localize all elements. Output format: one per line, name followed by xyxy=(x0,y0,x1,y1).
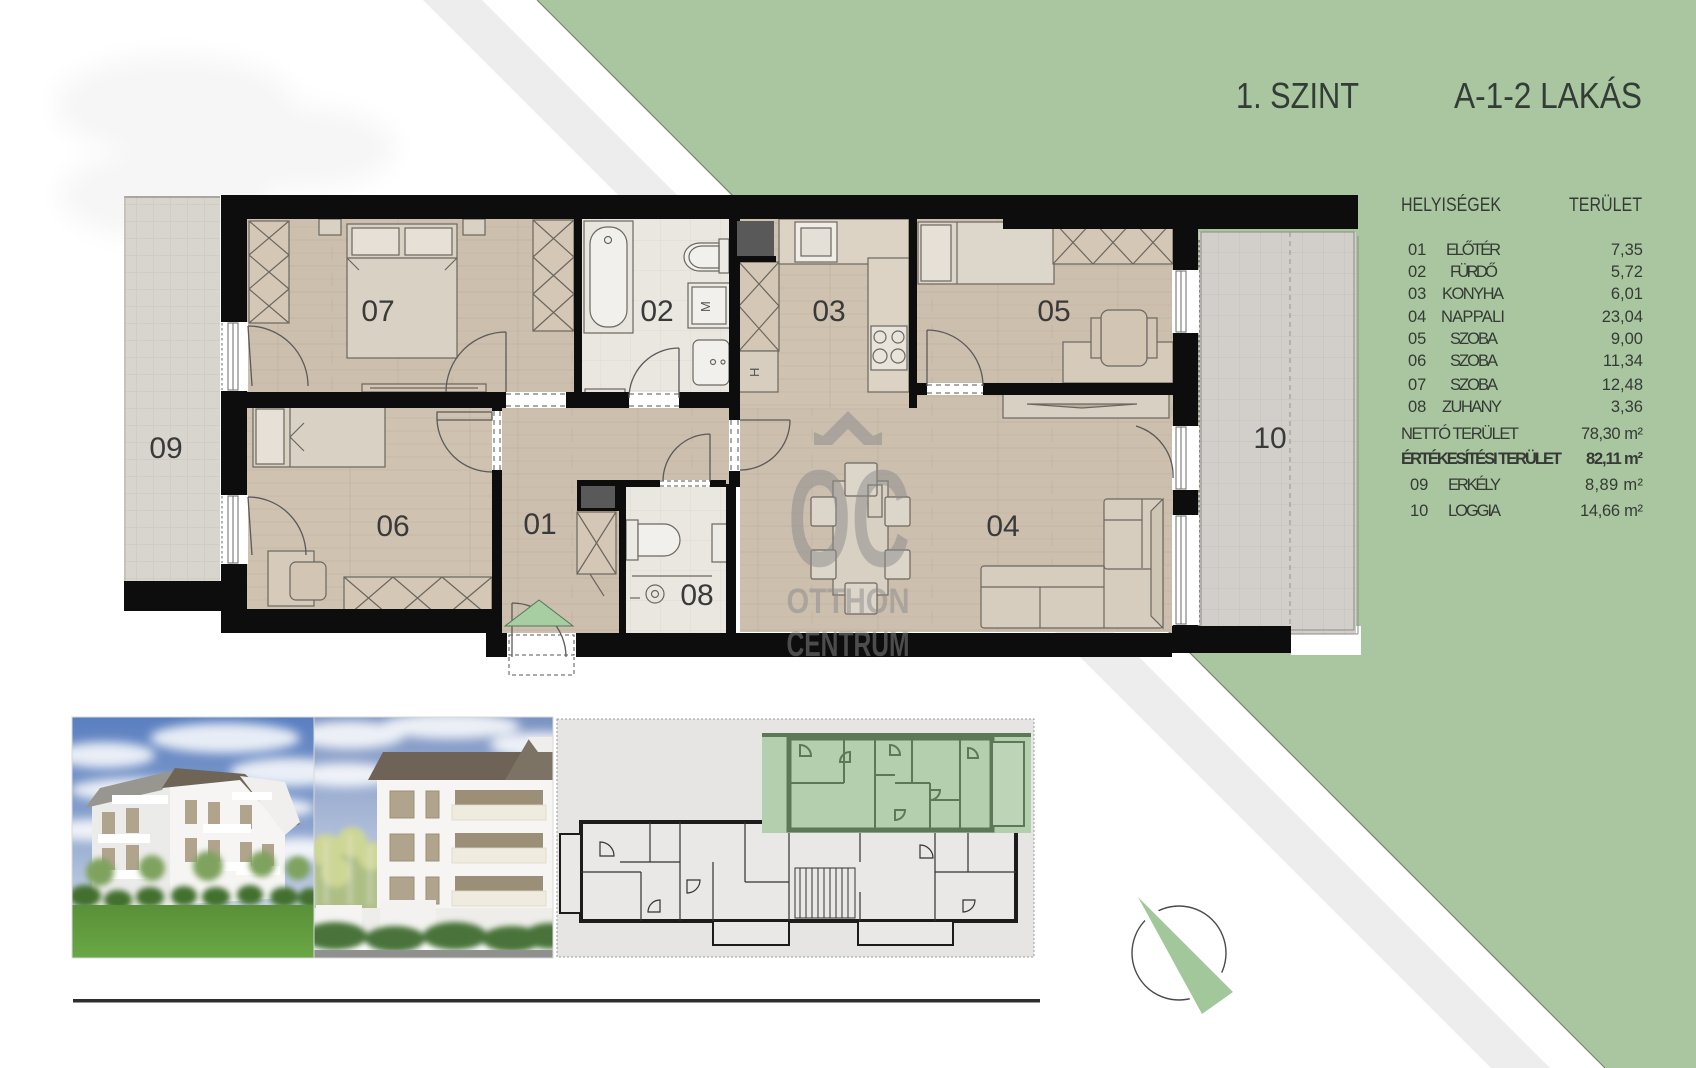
svg-text:07: 07 xyxy=(1408,376,1426,394)
svg-text:CENTRUM: CENTRUM xyxy=(787,625,910,664)
svg-text:03: 03 xyxy=(1408,285,1426,303)
svg-text:23,04: 23,04 xyxy=(1602,308,1643,326)
svg-text:ELŐTÉR: ELŐTÉR xyxy=(1446,240,1501,259)
svg-text:06: 06 xyxy=(1408,352,1426,370)
svg-text:SZOBA: SZOBA xyxy=(1450,376,1498,394)
svg-text:10: 10 xyxy=(1253,422,1286,455)
svg-text:14,66 m²: 14,66 m² xyxy=(1580,502,1644,520)
svg-text:06: 06 xyxy=(376,510,409,543)
svg-text:OTTHON: OTTHON xyxy=(787,582,910,621)
svg-text:ERKÉLY: ERKÉLY xyxy=(1448,475,1501,494)
svg-text:5,72: 5,72 xyxy=(1611,263,1643,281)
svg-text:OC: OC xyxy=(788,442,910,596)
svg-text:12,48: 12,48 xyxy=(1602,376,1643,394)
svg-text:04: 04 xyxy=(1408,308,1426,326)
svg-text:11,34: 11,34 xyxy=(1603,352,1643,370)
svg-text:ZUHANY: ZUHANY xyxy=(1442,398,1502,416)
svg-text:02: 02 xyxy=(640,295,673,328)
svg-text:08: 08 xyxy=(680,579,713,612)
svg-text:10: 10 xyxy=(1410,502,1428,520)
svg-text:09: 09 xyxy=(149,432,182,465)
svg-text:TERÜLET: TERÜLET xyxy=(1569,195,1642,216)
svg-text:A-1-2 LAKÁS: A-1-2 LAKÁS xyxy=(1454,75,1642,116)
svg-text:03: 03 xyxy=(812,295,845,328)
svg-text:8,89 m²: 8,89 m² xyxy=(1585,476,1644,494)
svg-text:9,00: 9,00 xyxy=(1611,330,1643,348)
svg-text:04: 04 xyxy=(986,510,1019,543)
svg-text:SZOBA: SZOBA xyxy=(1450,330,1498,348)
svg-text:7,35: 7,35 xyxy=(1611,241,1643,259)
svg-text:6,01: 6,01 xyxy=(1611,285,1643,303)
svg-text:NAPPALI: NAPPALI xyxy=(1441,308,1505,326)
svg-text:01: 01 xyxy=(523,508,556,541)
svg-text:KONYHA: KONYHA xyxy=(1442,285,1504,303)
svg-text:FÜRDŐ: FÜRDŐ xyxy=(1450,262,1498,281)
svg-text:SZOBA: SZOBA xyxy=(1450,352,1498,370)
svg-text:78,30 m²: 78,30 m² xyxy=(1581,425,1644,443)
svg-text:01: 01 xyxy=(1408,241,1426,259)
svg-text:02: 02 xyxy=(1408,263,1426,281)
svg-text:1. SZINT: 1. SZINT xyxy=(1236,75,1359,116)
svg-text:05: 05 xyxy=(1408,330,1426,348)
svg-text:HELYISÉGEK: HELYISÉGEK xyxy=(1401,195,1501,216)
svg-text:08: 08 xyxy=(1408,398,1426,416)
svg-text:LOGGIA: LOGGIA xyxy=(1448,502,1501,520)
svg-text:ÉRTÉKESÍTÉSI TERÜLET: ÉRTÉKESÍTÉSI TERÜLET xyxy=(1401,449,1562,468)
svg-text:3,36: 3,36 xyxy=(1611,398,1643,416)
svg-text:NETTÓ TERÜLET: NETTÓ TERÜLET xyxy=(1401,424,1519,443)
svg-text:H: H xyxy=(747,368,762,377)
svg-text:05: 05 xyxy=(1037,295,1070,328)
svg-text:09: 09 xyxy=(1410,476,1428,494)
svg-text:M: M xyxy=(698,301,713,312)
svg-text:07: 07 xyxy=(361,295,394,328)
svg-text:82,11 m²: 82,11 m² xyxy=(1586,450,1644,468)
